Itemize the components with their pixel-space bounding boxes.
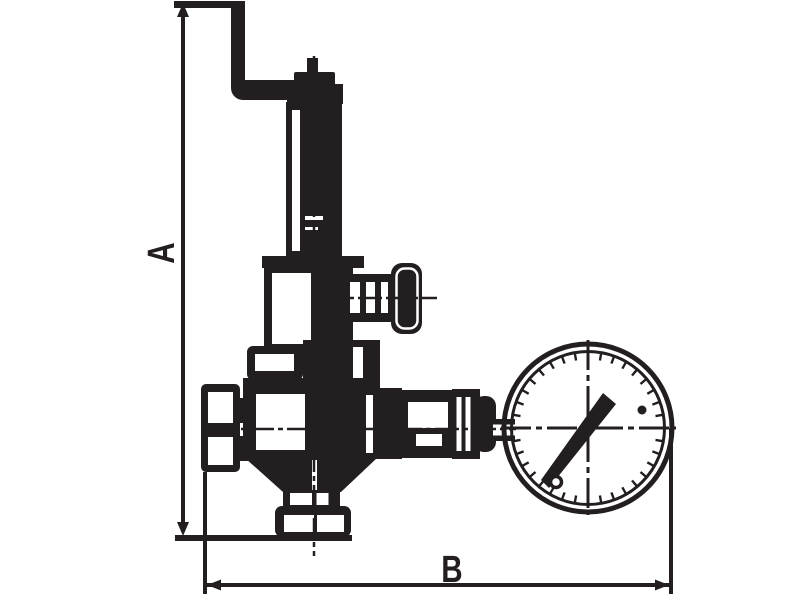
bottom-outlet [245,458,377,537]
bonnet-window [272,273,311,344]
gauge-tick [652,402,659,405]
body-window [256,394,305,450]
lever-vertical-arm [231,4,245,86]
gauge-tick [550,362,554,369]
gauge-tick [641,379,647,384]
gauge-tick [647,390,654,394]
bonnet-block [264,266,353,352]
outlet-shoulders [245,458,377,492]
gauge-tick [517,451,524,454]
gauge-tick [622,362,626,369]
white-detail [317,493,329,505]
valve-assembly [174,1,516,556]
gauge-tick [600,496,601,503]
gauge-needle [541,393,616,488]
gauge-tick [530,472,536,477]
dimension-a-label: A [141,242,183,263]
needle-hub-ring [551,477,562,488]
gauge-tick [575,496,576,503]
arrow-right-icon [655,580,669,591]
gauge-tick [530,379,536,384]
pressure-gauge [501,340,676,515]
white-detail [290,493,312,505]
gauge-tick [522,462,529,466]
arrow-left-icon [207,580,221,591]
white-detail [466,397,471,451]
test-lever [174,1,302,100]
dimension-b-label: B [441,549,462,591]
gauge-tick [622,487,626,494]
gauge-tick [539,370,544,376]
gauge-tick [641,472,647,477]
gauge-tick [562,357,565,364]
inlet-window-upper [208,392,233,423]
gauge-tick [656,440,663,441]
white-detail [305,227,318,230]
coupler-window-upper [408,402,448,428]
gauge-tick [517,402,524,405]
valve-drawing-svg: A B [0,0,800,598]
stem-tip [307,58,318,74]
flange-window-left [284,515,314,532]
gauge-tick [575,353,576,360]
inlet-window-lower [208,437,233,465]
valve-body [235,378,378,461]
housing-highlight [292,110,300,251]
white-detail [353,347,363,380]
gauge-tick [562,492,565,499]
technical-drawing: A B [0,0,800,598]
white-detail [457,397,462,451]
gauge-tick [513,440,520,441]
flange-window-right [317,515,344,532]
gauge-tick [652,451,659,454]
outlet-coupling [362,388,515,459]
gauge-tick [611,357,614,364]
gauge-tick [600,353,601,360]
gauge-tick [656,415,663,416]
gauge-tick [632,370,637,376]
gauge-dial-dot [638,406,647,415]
arrow-down-icon [177,522,189,536]
gauge-tick [647,462,654,466]
body-flange [247,346,303,380]
end-cap [474,396,496,452]
gauge-tick [611,492,614,499]
gauge-tick [632,481,637,487]
gauge-tick [513,415,520,416]
gauge-tick [522,390,529,394]
white-detail [366,395,373,453]
coupler-window-lower [416,434,442,446]
flange-window [255,354,294,371]
